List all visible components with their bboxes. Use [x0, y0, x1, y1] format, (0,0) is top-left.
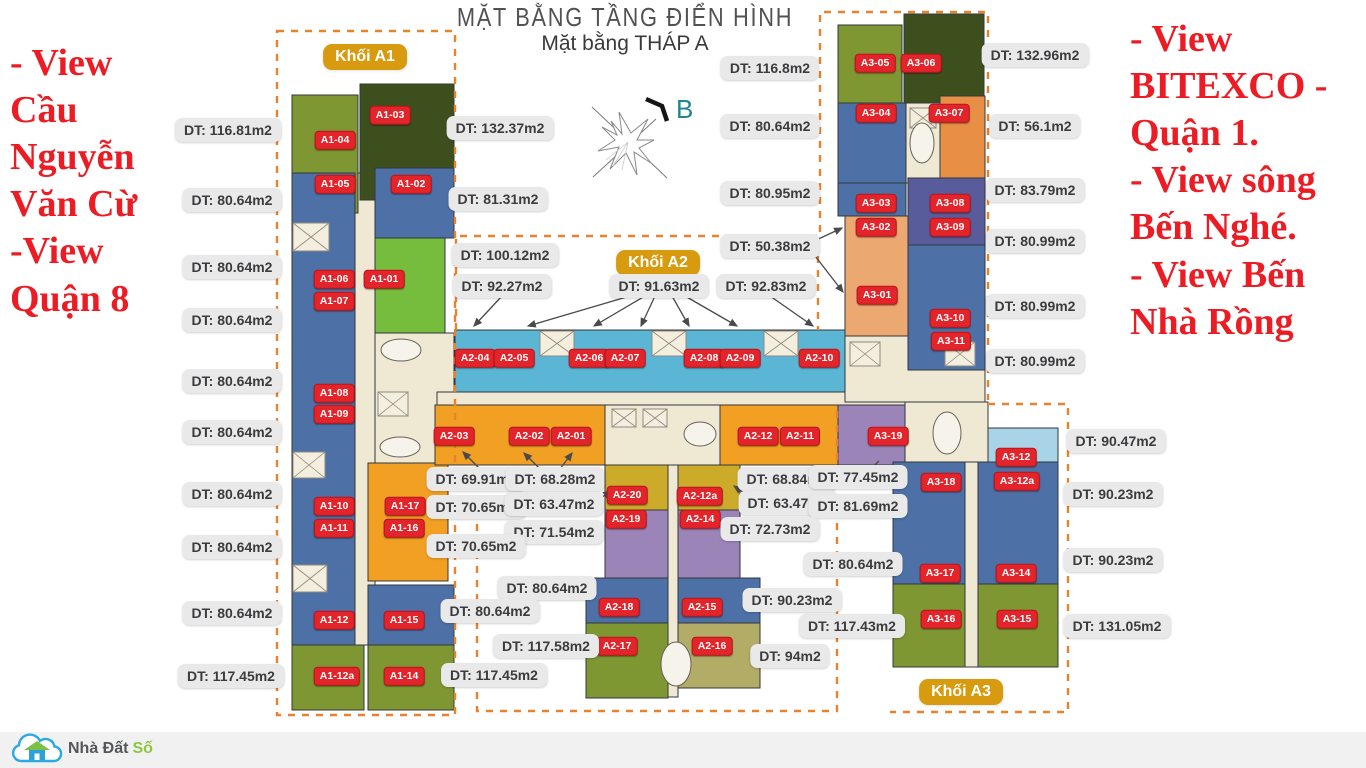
- elevator-shaft-icon: [643, 409, 667, 427]
- area-label: DT: 80.64m2: [498, 576, 597, 600]
- unit-badge-a2-08: A2-08: [684, 349, 725, 368]
- area-label: DT: 117.45m2: [178, 664, 284, 688]
- area-label: DT: 56.1m2: [989, 114, 1080, 138]
- area-label: DT: 116.81m2: [175, 118, 281, 142]
- unit-badge-a1-04: A1-04: [315, 131, 356, 150]
- unit-badge-a1-02: A1-02: [391, 175, 432, 194]
- unit-badge-a2-01: A2-01: [551, 427, 592, 446]
- area-label: DT: 116.8m2: [721, 56, 819, 80]
- area-label: DT: 117.58m2: [493, 634, 599, 658]
- elevator-shaft-icon: [378, 392, 408, 416]
- unit-badge-a1-08: A1-08: [314, 384, 355, 403]
- footer-band: [0, 732, 1366, 768]
- unit-badge-a3-02: A3-02: [856, 218, 897, 237]
- elevator-shaft-icon: [850, 342, 880, 366]
- page-title: MẶT BẰNG TẦNG ĐIỂN HÌNH: [444, 2, 805, 33]
- stair-core-icon: [933, 412, 961, 454]
- unit-badge-a2-06: A2-06: [569, 349, 610, 368]
- unit-badge-a1-05: A1-05: [315, 175, 356, 194]
- logo-text-primary: Nhà Đất: [68, 740, 128, 758]
- unit-badge-a2-20: A2-20: [607, 486, 648, 505]
- unit-badge-a3-11: A3-11: [931, 332, 971, 351]
- unit-badge-a3-03: A3-03: [856, 194, 897, 213]
- nha-dat-so-logo[interactable]: Nhà Đất Số: [10, 731, 153, 767]
- area-label: DT: 90.23m2: [1064, 482, 1163, 506]
- compass-north-arrow: [646, 99, 667, 121]
- area-label: DT: 80.64m2: [721, 114, 820, 138]
- unit-badge-a3-05: A3-05: [855, 54, 896, 73]
- area-label: DT: 117.43m2: [799, 614, 905, 638]
- unit-badge-a2-02: A2-02: [509, 427, 550, 446]
- unit-badge-a1-12: A1-12: [314, 611, 355, 630]
- area-label: DT: 63.47m2: [505, 492, 604, 516]
- area-label: DT: 94m2: [750, 644, 829, 668]
- page-subtitle: Mặt bằng THÁP A: [480, 32, 770, 56]
- unit-badge-a3-12a: A3-12a: [994, 472, 1040, 491]
- unit-badge-a2-09: A2-09: [720, 349, 761, 368]
- area-label: DT: 90.23m2: [1064, 548, 1163, 572]
- unit-badge-a3-19: A3-19: [868, 427, 909, 446]
- area-label: DT: 80.64m2: [183, 420, 282, 444]
- unit-badge-a2-03: A2-03: [434, 427, 475, 446]
- zone-a2-corridor: [437, 392, 905, 405]
- area-label: DT: 132.37m2: [447, 116, 554, 140]
- area-label: DT: 77.45m2: [809, 465, 908, 489]
- unit-badge-a1-11: A1-11: [314, 519, 354, 538]
- unit-badge-a2-16: A2-16: [692, 637, 733, 656]
- block-badge-khoi-a2: Khối A2: [616, 250, 700, 276]
- unit-badge-a1-03: A1-03: [370, 106, 411, 125]
- unit-badge-a2-05: A2-05: [494, 349, 535, 368]
- unit-badge-a3-07: A3-07: [929, 104, 970, 123]
- area-label: DT: 72.73m2: [721, 517, 820, 541]
- area-label: DT: 92.83m2: [717, 274, 816, 298]
- unit-badge-a3-15: A3-15: [997, 610, 1038, 629]
- compass-rose: [592, 99, 667, 178]
- unit-badge-a2-18: A2-18: [599, 598, 640, 617]
- area-label: DT: 80.64m2: [183, 369, 282, 393]
- unit-badge-a2-04: A2-04: [455, 349, 496, 368]
- unit-badge-a2-19: A2-19: [606, 510, 647, 529]
- floor-plan-page: MẶT BẰNG TẦNG ĐIỂN HÌNH Mặt bằng THÁP A …: [0, 0, 1366, 768]
- elevator-shaft-icon: [293, 565, 327, 592]
- unit-badge-a2-14: A2-14: [680, 510, 721, 529]
- zone-a3-corridor: [965, 462, 978, 667]
- stair-core-icon: [381, 339, 421, 361]
- area-label: DT: 70.65m2: [427, 534, 526, 558]
- area-label: DT: 91.63m2: [610, 274, 709, 298]
- unit-badge-a2-12a: A2-12a: [677, 487, 723, 506]
- area-label: DT: 80.64m2: [183, 601, 282, 625]
- block-badge-khoi-a3: Khối A3: [919, 679, 1003, 705]
- unit-badge-a2-15: A2-15: [682, 598, 723, 617]
- elevator-shaft-icon: [293, 452, 325, 478]
- unit-badge-a1-16: A1-16: [384, 519, 425, 538]
- unit-badge-a3-10: A3-10: [930, 309, 971, 328]
- area-label: DT: 81.31m2: [449, 187, 548, 211]
- stair-core-icon: [661, 642, 691, 686]
- unit-badge-a3-01: A3-01: [857, 286, 898, 305]
- unit-badge-a2-07: A2-07: [605, 349, 646, 368]
- area-label: DT: 80.64m2: [804, 552, 903, 576]
- unit-badge-a3-04: A3-04: [856, 104, 897, 123]
- area-label: DT: 80.64m2: [183, 255, 282, 279]
- cloud-house-icon: [10, 732, 64, 766]
- block-badge-khoi-a1: Khối A1: [323, 44, 407, 70]
- elevator-shaft-icon: [764, 331, 798, 356]
- area-label: DT: 132.96m2: [982, 43, 1089, 67]
- unit-badge-a1-17: A1-17: [385, 497, 426, 516]
- area-label: DT: 80.99m2: [986, 229, 1085, 253]
- zone-a2-17: [586, 623, 668, 698]
- elevator-shaft-icon: [612, 409, 636, 427]
- area-label: DT: 83.79m2: [986, 178, 1085, 202]
- area-label: DT: 80.99m2: [986, 349, 1085, 373]
- elevator-shaft-icon: [652, 331, 686, 356]
- unit-badge-a1-14: A1-14: [384, 667, 425, 686]
- unit-badge-a1-01: A1-01: [364, 270, 405, 289]
- view-note-left: - View Cầu Nguyễn Văn Cừ -View Quận 8: [10, 40, 210, 323]
- unit-badge-a3-14: A3-14: [996, 564, 1037, 583]
- area-label: DT: 90.47m2: [1067, 429, 1166, 453]
- unit-badge-a2-17: A2-17: [597, 637, 638, 656]
- unit-badge-a3-16: A3-16: [921, 610, 962, 629]
- stair-core-icon: [380, 437, 420, 457]
- area-label: DT: 80.99m2: [986, 294, 1085, 318]
- unit-badge-a3-06: A3-06: [901, 54, 942, 73]
- unit-badge-a1-12a: A1-12a: [314, 667, 360, 686]
- area-label: DT: 80.64m2: [183, 482, 282, 506]
- area-label: DT: 81.69m2: [809, 494, 908, 518]
- unit-badge-a1-06: A1-06: [314, 270, 355, 289]
- unit-badge-a3-17: A3-17: [920, 564, 961, 583]
- area-label: DT: 80.64m2: [183, 535, 282, 559]
- area-label: DT: 80.64m2: [441, 599, 540, 623]
- stair-core-icon: [910, 123, 934, 163]
- logo-text-accent: Số: [132, 740, 152, 758]
- unit-badge-a3-18: A3-18: [921, 473, 962, 492]
- unit-badge-a3-12: A3-12: [996, 448, 1037, 467]
- area-label: DT: 131.05m2: [1064, 614, 1171, 638]
- area-label: DT: 80.64m2: [183, 308, 282, 332]
- area-label: DT: 100.12m2: [452, 243, 559, 267]
- unit-badge-a1-07: A1-07: [314, 292, 355, 311]
- unit-badge-a1-15: A1-15: [384, 611, 425, 630]
- elevator-shaft-icon: [293, 223, 329, 251]
- area-label: DT: 117.45m2: [441, 663, 547, 687]
- unit-badge-a3-09: A3-09: [930, 218, 971, 237]
- unit-badge-a2-11: A2-11: [780, 427, 820, 446]
- area-label: DT: 90.23m2: [743, 588, 842, 612]
- unit-badge-a1-09: A1-09: [314, 405, 355, 424]
- area-label: DT: 80.64m2: [183, 188, 282, 212]
- area-label: DT: 50.38m2: [721, 234, 820, 258]
- unit-badge-a2-12: A2-12: [738, 427, 779, 446]
- unit-badge-a3-08: A3-08: [930, 194, 971, 213]
- compass-direction-label: B: [676, 94, 693, 125]
- area-label: DT: 92.27m2: [453, 274, 552, 298]
- stair-core-icon: [684, 422, 716, 446]
- area-label: DT: 80.95m2: [721, 181, 820, 205]
- unit-badge-a2-10: A2-10: [799, 349, 840, 368]
- unit-badge-a1-10: A1-10: [314, 497, 355, 516]
- view-note-right: - View BITEXCO - Quận 1. - View sông Bến…: [1130, 16, 1366, 346]
- area-label: DT: 68.28m2: [506, 467, 605, 491]
